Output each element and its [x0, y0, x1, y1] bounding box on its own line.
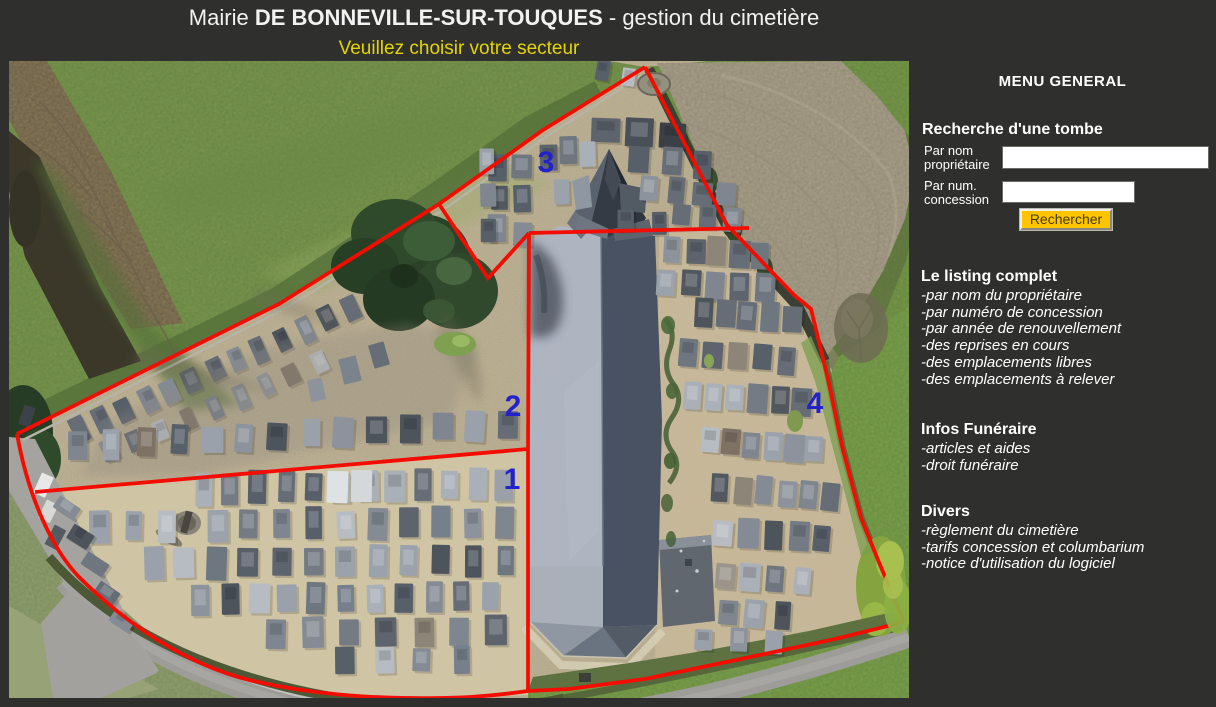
svg-text:1: 1 [504, 463, 521, 496]
svg-text:2: 2 [505, 390, 522, 423]
svg-text:3: 3 [538, 146, 555, 179]
svg-text:4: 4 [807, 387, 824, 420]
